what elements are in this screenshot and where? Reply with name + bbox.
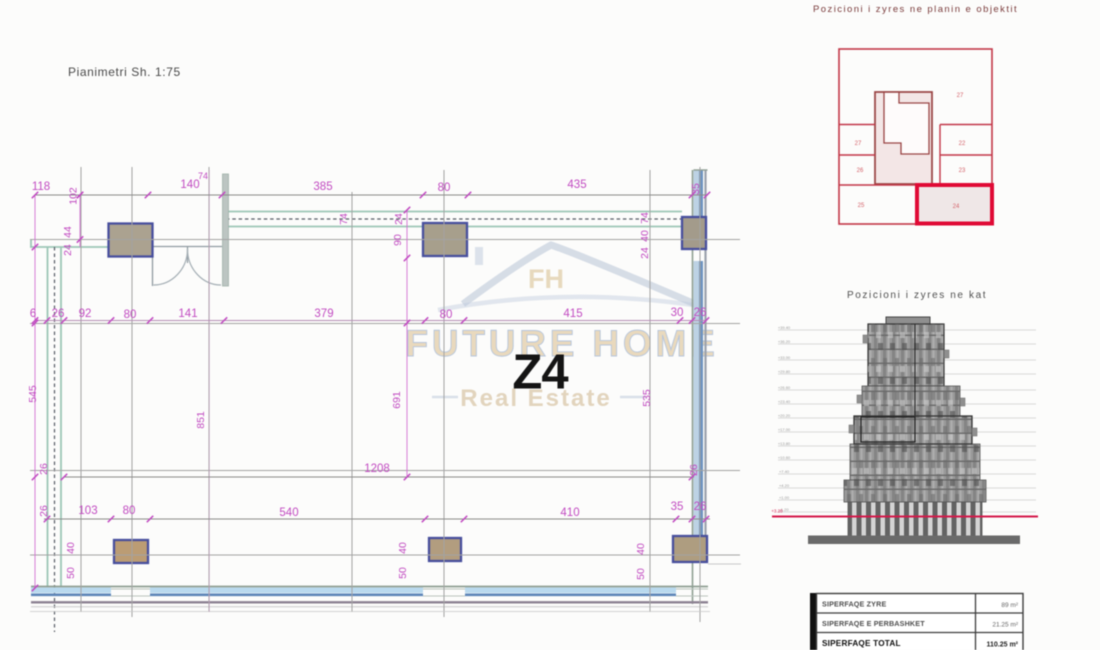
- svg-text:35: 35: [671, 501, 684, 513]
- svg-text:30: 30: [671, 307, 684, 319]
- svg-text:Z4: Z4: [512, 346, 568, 400]
- svg-text:26: 26: [52, 308, 65, 320]
- svg-text:SIPERFAQE TOTAL: SIPERFAQE TOTAL: [822, 639, 901, 648]
- svg-text:50: 50: [397, 567, 409, 579]
- svg-text:545: 545: [27, 385, 39, 403]
- svg-text:435: 435: [567, 179, 586, 191]
- svg-text:74: 74: [639, 212, 651, 224]
- svg-text:+23.40: +23.40: [778, 399, 791, 404]
- svg-text:+36.20: +36.20: [778, 339, 791, 344]
- svg-text:103: 103: [78, 505, 97, 517]
- svg-text:691: 691: [391, 391, 403, 409]
- svg-text:Pozicioni i zyres ne planin e: Pozicioni i zyres ne planin e objektit: [813, 4, 1018, 15]
- svg-text:102: 102: [68, 187, 80, 205]
- svg-text:80: 80: [440, 309, 453, 321]
- svg-text:89 m²: 89 m²: [1001, 602, 1018, 609]
- svg-text:26: 26: [688, 464, 700, 476]
- svg-text:+4.20: +4.20: [779, 483, 790, 488]
- svg-text:415: 415: [563, 308, 582, 320]
- svg-text:379: 379: [314, 308, 333, 320]
- svg-text:535: 535: [641, 389, 653, 407]
- svg-text:141: 141: [178, 308, 197, 320]
- svg-text:50: 50: [635, 568, 647, 580]
- svg-text:26: 26: [38, 463, 50, 475]
- svg-text:+13.80: +13.80: [778, 441, 791, 446]
- svg-text:25: 25: [858, 203, 865, 209]
- svg-text:50: 50: [65, 567, 77, 579]
- svg-text:80: 80: [123, 505, 136, 517]
- svg-text:+20.20: +20.20: [778, 413, 791, 418]
- svg-text:24: 24: [953, 204, 960, 210]
- svg-text:+33.00: +33.00: [778, 355, 791, 360]
- svg-text:35: 35: [690, 183, 702, 195]
- svg-text:+39.40: +39.40: [778, 325, 791, 330]
- svg-text:FH: FH: [528, 264, 564, 294]
- svg-text:+29.80: +29.80: [778, 369, 791, 374]
- svg-text:27: 27: [957, 93, 964, 99]
- svg-text:92: 92: [79, 308, 92, 320]
- svg-text:26: 26: [694, 501, 707, 513]
- svg-text:40: 40: [397, 542, 409, 554]
- svg-text:6: 6: [30, 308, 36, 320]
- svg-text:540: 540: [279, 507, 298, 519]
- svg-text:Pianimetri Sh. 1:75: Pianimetri Sh. 1:75: [68, 65, 181, 79]
- svg-text:Pozicioni i zyres ne kat: Pozicioni i zyres ne kat: [847, 290, 987, 301]
- svg-text:24: 24: [639, 247, 651, 259]
- svg-text:44: 44: [62, 226, 74, 238]
- svg-text:+1.00: +1.00: [779, 495, 790, 500]
- svg-text:26: 26: [694, 307, 707, 319]
- svg-text:40: 40: [65, 542, 77, 554]
- svg-text:22: 22: [959, 141, 966, 147]
- svg-text:1208: 1208: [364, 463, 390, 475]
- svg-text:24: 24: [62, 244, 74, 256]
- svg-text:80: 80: [124, 309, 137, 321]
- svg-text:26: 26: [38, 505, 50, 517]
- svg-text:385: 385: [313, 181, 332, 193]
- svg-text:80: 80: [438, 182, 451, 194]
- svg-text:110.25 m²: 110.25 m²: [986, 642, 1018, 649]
- svg-text:74: 74: [198, 171, 208, 181]
- svg-text:74: 74: [338, 213, 350, 225]
- svg-text:+17.00: +17.00: [778, 427, 791, 432]
- svg-text:23: 23: [959, 168, 966, 174]
- svg-text:SIPERFAQE E PERBASHKET: SIPERFAQE E PERBASHKET: [822, 619, 925, 628]
- svg-text:40: 40: [635, 543, 647, 555]
- svg-text:851: 851: [195, 411, 207, 429]
- svg-text:90: 90: [392, 234, 404, 246]
- svg-text:140: 140: [180, 179, 199, 191]
- svg-text:24: 24: [393, 213, 405, 225]
- svg-text:40: 40: [639, 230, 651, 242]
- svg-text:26: 26: [857, 168, 864, 174]
- svg-text:+10.60: +10.60: [778, 455, 791, 460]
- svg-text:+7.40: +7.40: [779, 469, 790, 474]
- svg-text:27: 27: [855, 141, 862, 147]
- svg-text:SIPERFAQE ZYRE: SIPERFAQE ZYRE: [822, 600, 886, 609]
- svg-text:118: 118: [32, 181, 50, 193]
- svg-text:+26.60: +26.60: [778, 385, 791, 390]
- svg-text:410: 410: [560, 507, 579, 519]
- svg-text:+3.20: +3.20: [771, 509, 783, 514]
- svg-text:21.25 m²: 21.25 m²: [992, 622, 1018, 629]
